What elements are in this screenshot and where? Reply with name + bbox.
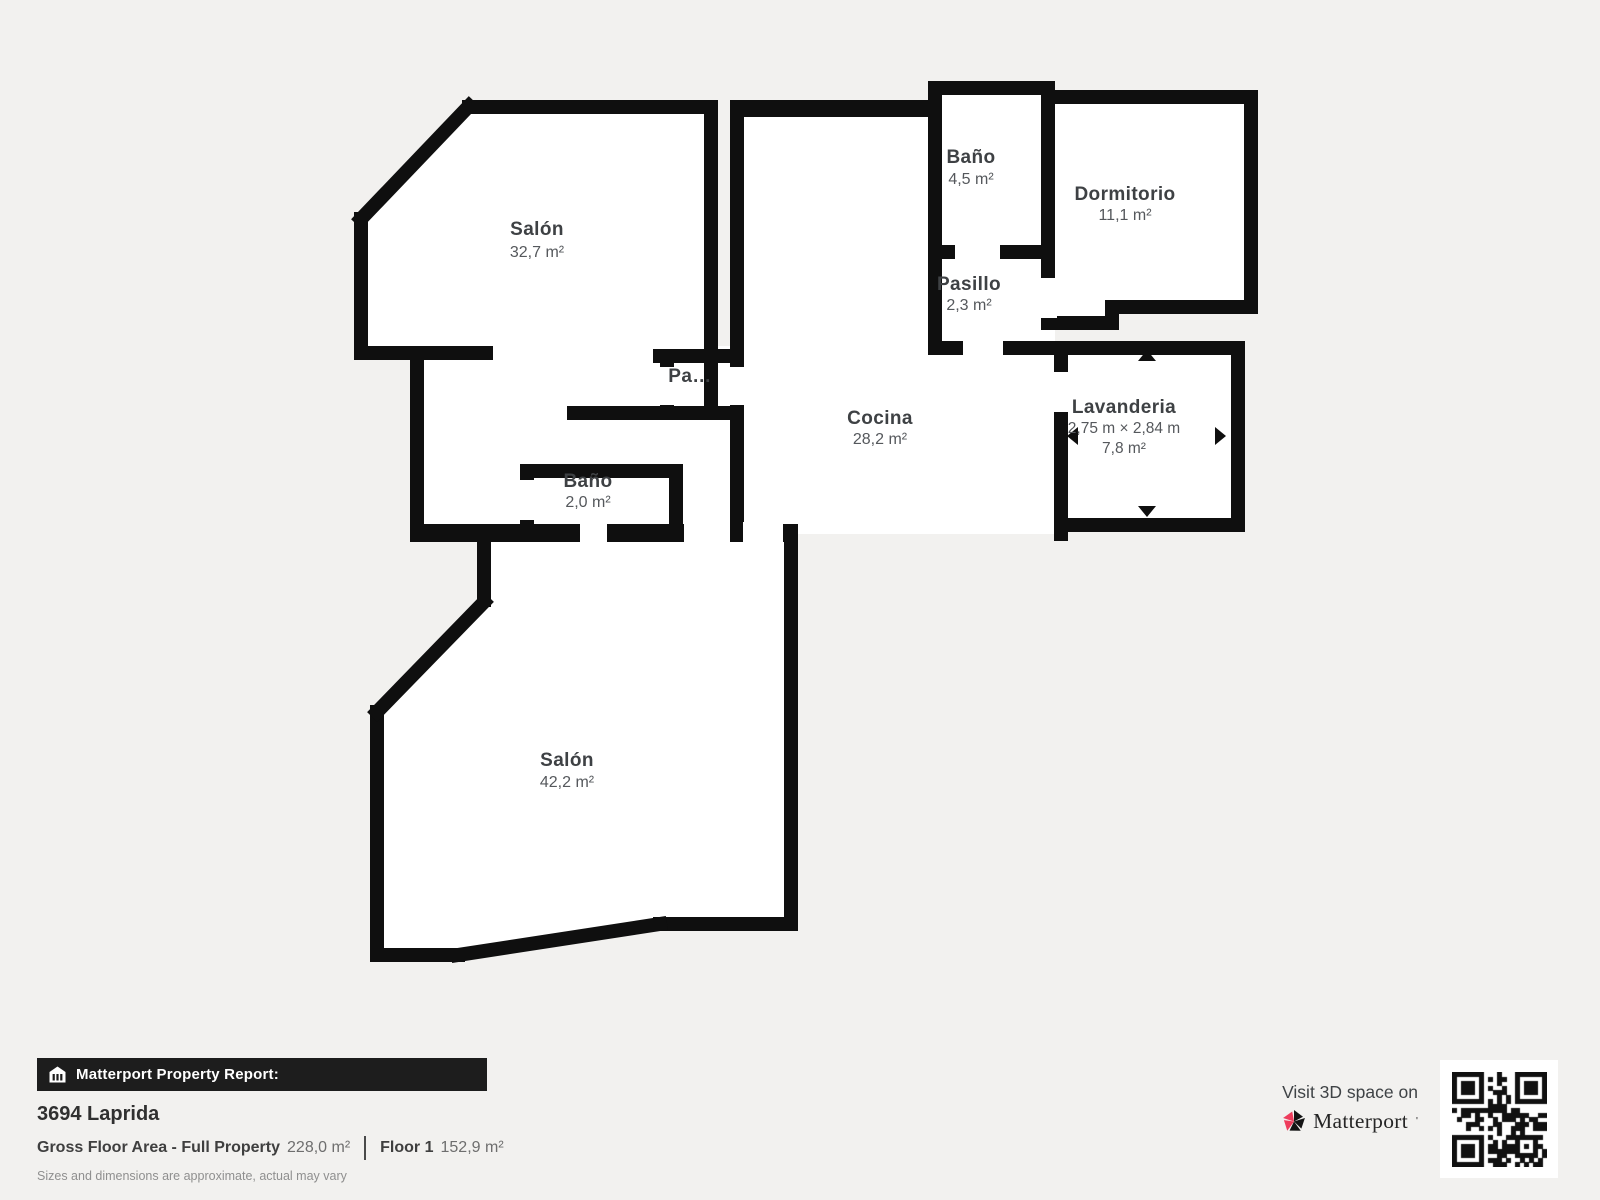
matterport-logo: Matterport' xyxy=(1240,1108,1460,1134)
floor-plan-svg: Salón 32,7 m² Baño 4,5 m² Dormitorio 11,… xyxy=(0,0,1600,1200)
svg-text:7,8 m²: 7,8 m² xyxy=(1102,440,1146,457)
svg-text:Baño: Baño xyxy=(563,471,612,492)
matterport-floor-plan-report: { "plan": { "rooms": { "salon_top": {"na… xyxy=(0,0,1600,1200)
gross-floor-area-value: 228,0 m² xyxy=(287,1139,350,1157)
svg-text:Salón: Salón xyxy=(510,219,564,240)
svg-text:Pa…: Pa… xyxy=(668,366,711,387)
area-summary: Gross Floor Area - Full Property 228,0 m… xyxy=(37,1136,1037,1160)
svg-text:Dormitorio: Dormitorio xyxy=(1074,184,1175,205)
room-label-bano-small: Baño 2,0 m² xyxy=(563,471,612,511)
room-label-salon-bottom: Salón 42,2 m² xyxy=(540,750,595,791)
svg-text:4,5 m²: 4,5 m² xyxy=(948,171,994,188)
matterport-wordmark: Matterport xyxy=(1313,1109,1408,1134)
svg-text:11,1 m²: 11,1 m² xyxy=(1098,207,1152,224)
gross-floor-area-label: Gross Floor Area - Full Property xyxy=(37,1139,280,1157)
svg-text:Salón: Salón xyxy=(540,750,594,771)
room-label-cocina: Cocina 28,2 m² xyxy=(847,408,913,448)
visit-3d-block: Visit 3D space on Matterport' xyxy=(1240,1082,1460,1134)
room-label-bano-top: Baño 4,5 m² xyxy=(946,147,995,188)
svg-text:Cocina: Cocina xyxy=(847,408,913,429)
room-label-pasillo: Pasillo 2,3 m² xyxy=(937,274,1001,314)
svg-text:28,2 m²: 28,2 m² xyxy=(853,431,908,448)
floor-label: Floor 1 xyxy=(380,1139,433,1157)
property-name: 3694 Laprida xyxy=(37,1103,1037,1126)
footer: Matterport Property Report: 3694 Laprida… xyxy=(37,1058,1037,1183)
report-title-bar: Matterport Property Report: xyxy=(37,1058,487,1091)
house-icon xyxy=(49,1066,66,1083)
floor-salon-bottom xyxy=(377,534,791,955)
room-label-pasillo-small: Pa… xyxy=(668,366,711,387)
trademark-mark: ' xyxy=(1416,1116,1418,1127)
divider xyxy=(364,1136,366,1160)
disclaimer-text: Sizes and dimensions are approximate, ac… xyxy=(37,1169,1037,1183)
svg-text:2,0 m²: 2,0 m² xyxy=(565,494,611,511)
svg-text:2,3 m²: 2,3 m² xyxy=(946,297,992,314)
matterport-pinwheel-icon xyxy=(1282,1108,1306,1134)
svg-text:Baño: Baño xyxy=(946,147,995,168)
svg-text:Pasillo: Pasillo xyxy=(937,274,1001,295)
floor-bano-top xyxy=(935,85,1048,255)
qr-code-canvas xyxy=(1452,1072,1547,1167)
svg-text:42,2 m²: 42,2 m² xyxy=(540,774,595,791)
floor-value: 152,9 m² xyxy=(441,1139,504,1157)
svg-text:32,7 m²: 32,7 m² xyxy=(510,244,565,261)
visit-3d-label: Visit 3D space on xyxy=(1240,1082,1460,1103)
svg-text:Lavanderia: Lavanderia xyxy=(1072,397,1176,418)
qr-code xyxy=(1440,1060,1558,1178)
report-title: Matterport Property Report: xyxy=(76,1066,279,1083)
svg-text:2,75 m × 2,84 m: 2,75 m × 2,84 m xyxy=(1068,420,1180,437)
